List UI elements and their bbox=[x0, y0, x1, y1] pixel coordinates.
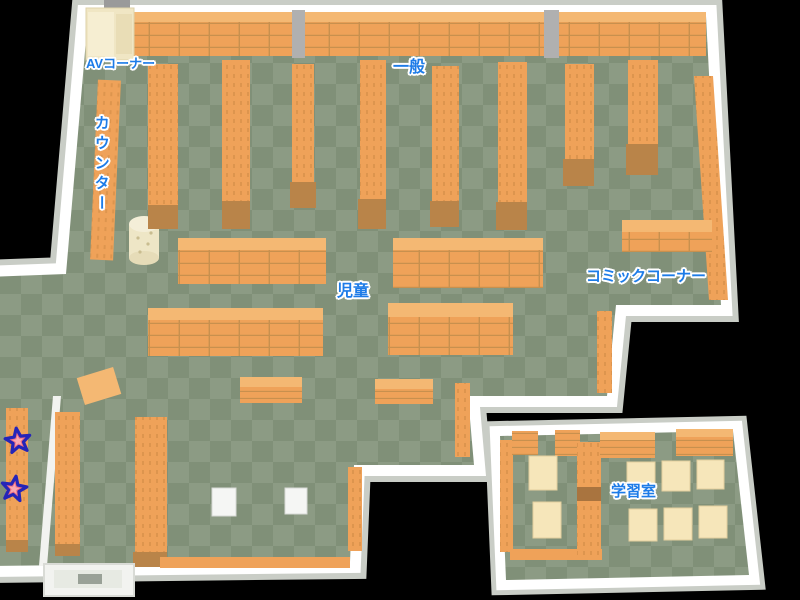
children-small-shelf bbox=[240, 377, 302, 403]
wall-shelf-strip bbox=[597, 311, 612, 393]
aisle-bookshelf bbox=[148, 64, 178, 229]
label-av-corner: AVコーナー bbox=[86, 57, 155, 71]
entrance-vestibule bbox=[44, 564, 134, 596]
study-divider-shelf bbox=[577, 442, 601, 560]
white-table bbox=[212, 488, 236, 516]
av-corner-unit bbox=[86, 0, 134, 60]
study-wall-shelf bbox=[500, 440, 513, 552]
aisle-bookshelf bbox=[358, 60, 386, 229]
pillar bbox=[544, 10, 559, 58]
study-slat-shelf bbox=[600, 432, 655, 458]
study-desk bbox=[697, 460, 724, 489]
study-desk bbox=[664, 508, 692, 540]
aisle-bookshelf bbox=[430, 66, 459, 227]
study-small-shelf bbox=[512, 431, 538, 455]
aisle-bookshelf bbox=[563, 64, 594, 186]
aisle-bookshelf bbox=[222, 60, 250, 229]
study-desk bbox=[699, 506, 727, 538]
children-low-shelf bbox=[178, 238, 326, 284]
pillar bbox=[292, 10, 305, 58]
wall-bookshelf-top-right bbox=[559, 12, 706, 56]
wall-shelf-strip bbox=[455, 383, 470, 457]
children-low-shelf bbox=[148, 308, 323, 356]
study-desk bbox=[533, 502, 561, 538]
label-study-room: 学習室 bbox=[611, 484, 656, 500]
aisle-bookshelf bbox=[133, 417, 167, 567]
aisle-bookshelf bbox=[626, 60, 658, 175]
wall-bookshelf-top-left bbox=[122, 12, 292, 56]
study-desk bbox=[662, 461, 690, 491]
study-desk bbox=[529, 456, 557, 490]
study-desk bbox=[629, 509, 657, 541]
wall-shelf-strip bbox=[348, 467, 362, 551]
children-low-shelf bbox=[393, 238, 543, 288]
comic-low-shelf bbox=[622, 220, 712, 252]
label-counter: カウンター bbox=[93, 115, 109, 215]
label-general: 一般 bbox=[393, 60, 425, 77]
children-small-shelf bbox=[375, 379, 433, 404]
wall-bench bbox=[160, 557, 350, 568]
study-small-shelf bbox=[555, 430, 580, 456]
aisle-bookshelf bbox=[496, 62, 527, 230]
wall-bookshelf-top-middle bbox=[305, 12, 544, 56]
floor-plan-canvas bbox=[0, 0, 800, 600]
white-table bbox=[285, 488, 307, 514]
label-comic-corner: コミックコーナー bbox=[586, 269, 706, 285]
aisle-bookshelf bbox=[290, 64, 316, 208]
children-low-shelf bbox=[388, 303, 513, 355]
study-slat-shelf bbox=[676, 429, 733, 456]
library-map: AVコーナー 一般 カウンター 児童 コミックコーナー 学習室 bbox=[0, 0, 800, 600]
aisle-bookshelf bbox=[55, 412, 80, 556]
label-children: 児童 bbox=[337, 284, 369, 301]
